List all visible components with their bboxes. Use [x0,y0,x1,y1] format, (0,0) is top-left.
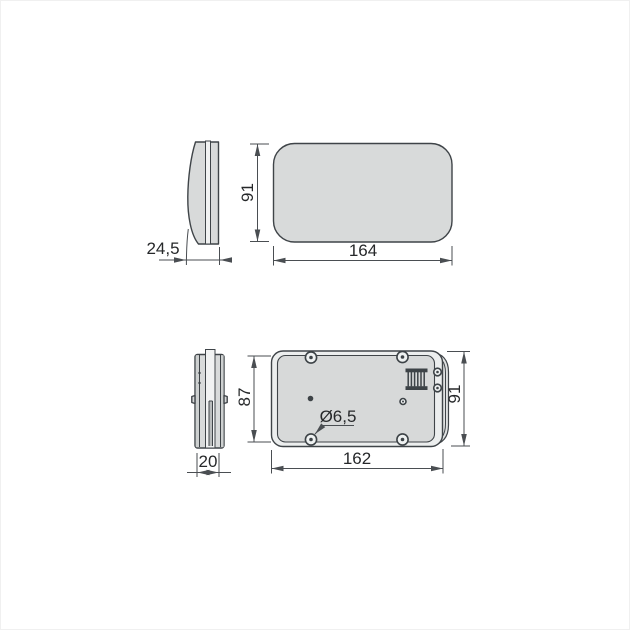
dim-bottom-outer-height-label: 91 [445,385,464,404]
dim-top-height: 91 [238,144,269,242]
front-face-view [274,144,453,243]
drawing-svg: 24,5 91 164 20 [1,1,630,630]
edge-screw-top [434,368,442,376]
center-channel [209,401,213,446]
dim-top-width: 164 [274,241,453,266]
dim-top-height-label: 91 [238,183,257,202]
shading-band-right [221,355,224,447]
center-hole-right [400,399,406,405]
dim-top-depth-label: 24,5 [146,239,179,258]
dim-bottom-width: 162 [272,449,444,474]
clip-right [224,396,227,404]
dim-bottom-depth: 20 [187,452,231,477]
screw-hole-top-right [397,351,408,362]
dim-bottom-inner-height-label: 87 [235,388,254,407]
side-profile-top-view [186,141,218,265]
side-profile-top-body [188,142,219,244]
screw-hole-top-left [305,352,316,363]
edge-screw-bottom [434,384,442,392]
dim-bottom-inner-height: 87 [235,356,271,442]
dim-bottom-width-label: 162 [343,449,371,468]
back-panel-view [272,351,449,447]
profile-dot [198,372,200,374]
dim-bottom-outer-height: 91 [445,352,470,447]
dim-top-width-label: 164 [349,241,377,260]
dim-bottom-depth-label: 20 [199,452,218,471]
back-panel-recess [278,356,435,443]
screw-hole-bottom-left [305,434,316,445]
profile-dot [198,382,200,384]
front-face [274,144,453,243]
center-pin-left [308,396,314,402]
side-profile-top-flange [206,141,211,244]
technical-drawing-canvas: 24,5 91 164 20 [0,0,630,630]
clip-left [192,396,195,404]
hole-diameter-label: Ø6,5 [320,407,357,426]
side-profile-bottom-view [192,350,227,449]
screw-hole-bottom-right [397,434,408,445]
